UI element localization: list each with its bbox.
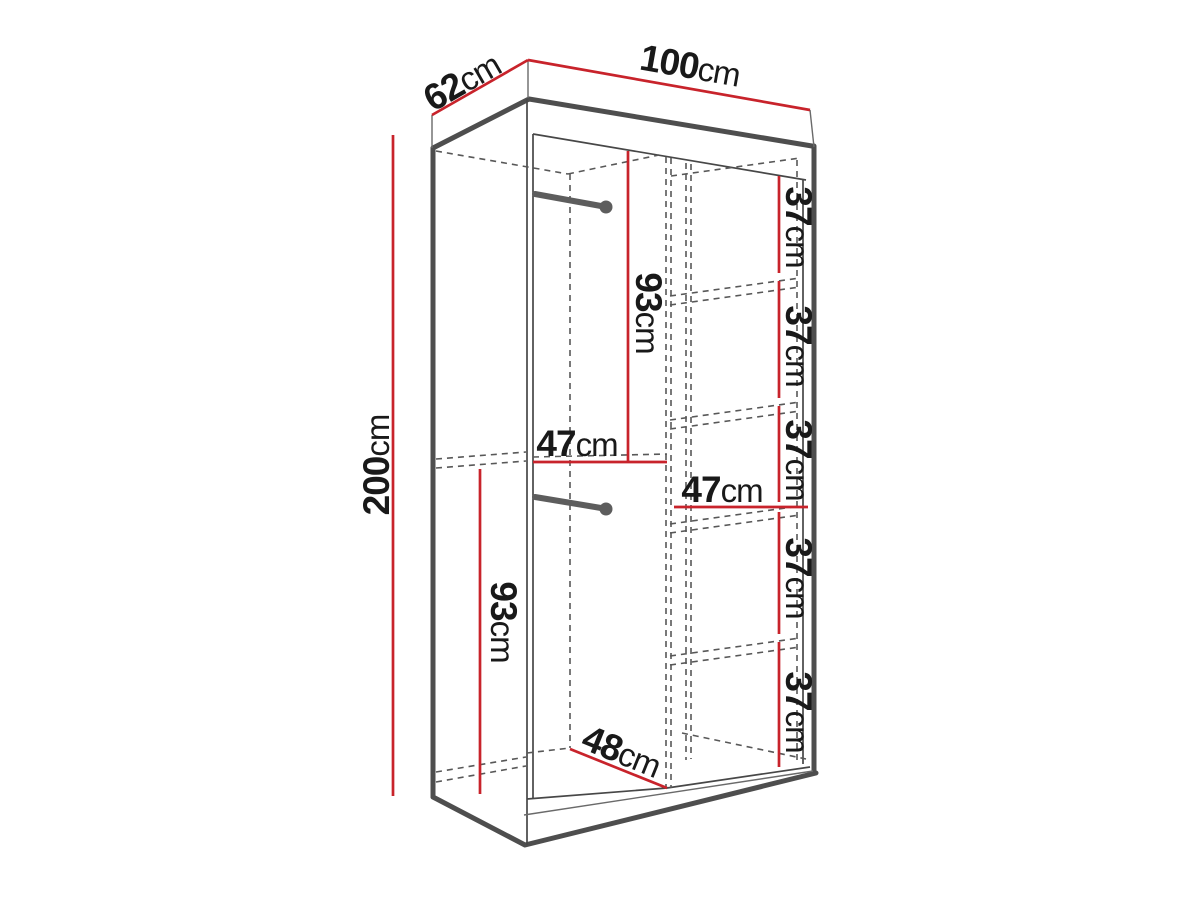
hanging-rod-upper <box>535 194 613 214</box>
interior-back-top-edge <box>568 155 659 174</box>
cabinet-bottom-edge <box>433 773 816 845</box>
dim-label-bottom-depth: 48cm <box>576 717 667 785</box>
dim-label-width-top: 100cm <box>637 37 743 95</box>
rod-end-knob <box>600 503 613 516</box>
dim-label-height: 200cm <box>356 415 397 516</box>
shelf-2-top-edge <box>670 402 800 420</box>
shelf-1-bottom-edge <box>670 287 800 305</box>
shelf-1-top-edge <box>670 278 800 296</box>
shelf-4-top-edge <box>670 638 800 656</box>
dim-label-shelf-gap-5: 37cm <box>778 671 819 752</box>
dim-label-depth-top: 62cm <box>416 43 507 119</box>
hanging-rod-lower <box>535 497 613 516</box>
interior-ceiling-edge <box>533 134 806 180</box>
rod-end-knob <box>600 201 613 214</box>
dim-label-upper-section-width: 47cm <box>536 423 617 464</box>
dim-label-upper-hang-height: 93cm <box>628 272 669 353</box>
dim-label-shelf-gap-1: 37cm <box>778 186 819 267</box>
dimension-labels: 62cm 100cm 200cm 93cm 47cm 93cm 48cm 47c… <box>356 37 819 786</box>
shelf-3-bottom-edge <box>670 515 800 533</box>
wardrobe-outline <box>432 60 816 845</box>
dim-label-lower-hang-height: 93cm <box>483 581 524 662</box>
dim-label-shelf-gap-4: 37cm <box>778 537 819 618</box>
cabinet-top-front-edge <box>433 99 812 148</box>
wardrobe-interior-hidden-lines <box>436 151 806 789</box>
wardrobe-dimension-diagram: 62cm 100cm 200cm 93cm 47cm 93cm 48cm 47c… <box>0 0 1200 900</box>
top-right-connector <box>810 110 814 147</box>
dim-label-shelf-column-width: 47cm <box>681 469 762 510</box>
product-dimension-image: 62cm 100cm 200cm 93cm 47cm 93cm 48cm 47c… <box>0 0 1200 900</box>
interior-back-top-left-edge <box>436 151 568 174</box>
dim-label-shelf-gap-3: 37cm <box>778 419 819 500</box>
dim-label-shelf-gap-2: 37cm <box>778 305 819 386</box>
shelf-4-bottom-edge <box>670 647 800 665</box>
middle-shelf-hidden-edge-2 <box>436 461 526 468</box>
middle-shelf-hidden-edge-1 <box>436 452 526 459</box>
